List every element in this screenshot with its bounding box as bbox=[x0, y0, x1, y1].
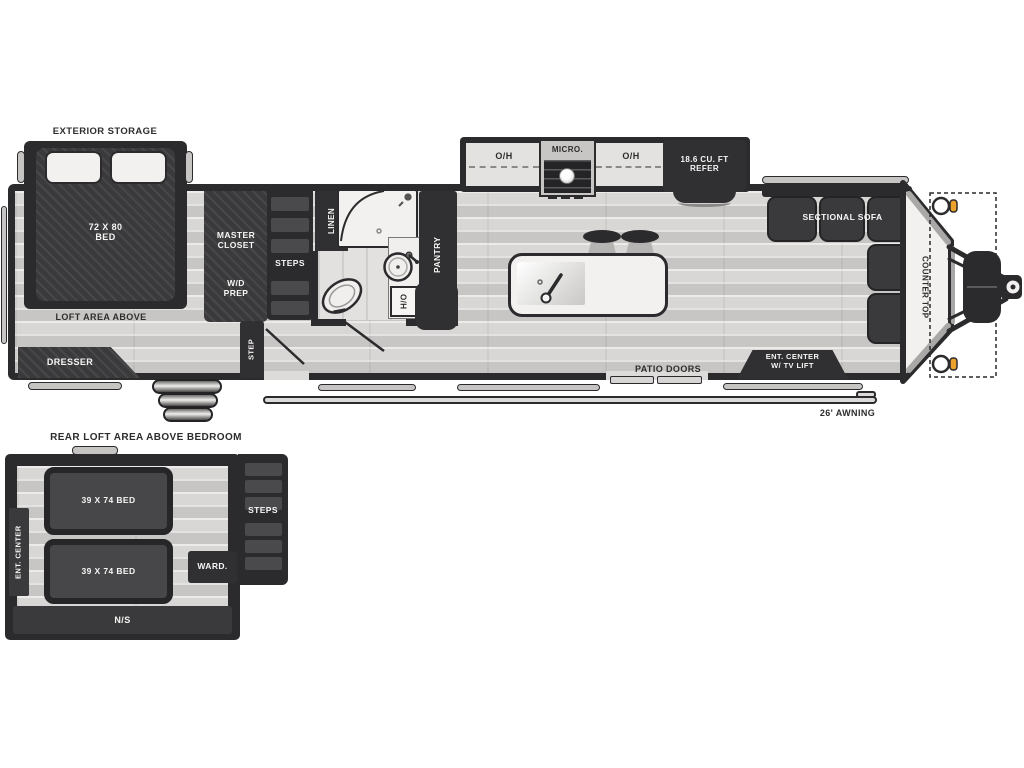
steps-label: STEPS bbox=[267, 259, 313, 269]
master-closet-label: MASTER CLOSET bbox=[204, 231, 268, 251]
loft-ent-center-label: ENT. CENTER bbox=[9, 508, 29, 596]
patio-door-panel bbox=[657, 376, 702, 384]
awning-label: 26' AWNING bbox=[795, 408, 900, 418]
sofa-cushion bbox=[867, 293, 917, 344]
overhead-cabinet-left-label: O/H bbox=[470, 151, 538, 161]
range-vent-dash bbox=[574, 195, 583, 199]
pillow bbox=[110, 151, 167, 184]
counter-dash-left bbox=[469, 166, 539, 168]
wd-prep-label: W/D PREP bbox=[204, 279, 268, 299]
water-heater-label: H/O bbox=[390, 286, 418, 317]
entry-step-label: STEP bbox=[240, 321, 264, 378]
slide-cap-right bbox=[185, 151, 193, 183]
propane-tanks bbox=[963, 251, 1001, 323]
rear-bumper-bar bbox=[1, 206, 7, 344]
floorplan-page: EXTERIOR STORAGE 72 X 80 BED O/H O/H MIC… bbox=[0, 0, 1024, 768]
refrigerator-arc bbox=[678, 199, 731, 207]
slide-rail-bar bbox=[723, 383, 863, 390]
step-tread bbox=[245, 540, 282, 553]
refrigerator-label: 18.6 CU. FT REFER bbox=[663, 155, 746, 173]
slide-rail-bar bbox=[28, 382, 122, 390]
loft-bed-2-label: 39 X 74 BED bbox=[44, 539, 173, 604]
hitch-assembly bbox=[930, 193, 1022, 377]
range-vent-dash bbox=[561, 195, 570, 199]
step-tread bbox=[271, 197, 309, 211]
patio-door-panel bbox=[610, 376, 654, 384]
marker-light-icon bbox=[950, 358, 957, 370]
slide-cap-left bbox=[17, 151, 25, 183]
entry-steps-exterior bbox=[152, 379, 222, 394]
loft-steps-label: STEPS bbox=[238, 506, 288, 516]
bath-wall-segment bbox=[313, 319, 346, 326]
sofa-slide-cap bbox=[762, 176, 909, 184]
sectional-sofa-label: SECTIONAL SOFA bbox=[785, 213, 900, 223]
bed-size-label: 72 X 80 BED bbox=[36, 222, 175, 243]
slide-rail-bar bbox=[318, 384, 416, 391]
stabilizer-jack-icon bbox=[933, 198, 949, 214]
loft-area-label: LOFT AREA ABOVE bbox=[30, 312, 172, 322]
entry-steps-exterior bbox=[158, 393, 218, 408]
range-vent-dash bbox=[548, 195, 557, 199]
microwave-label: MICRO. bbox=[539, 145, 596, 154]
step-tread bbox=[245, 523, 282, 536]
marker-light-icon bbox=[950, 200, 957, 212]
loft-bed-1-label: 39 X 74 BED bbox=[44, 467, 173, 535]
entry-steps-exterior bbox=[163, 407, 213, 422]
pantry-label: PANTRY bbox=[419, 200, 457, 310]
step-tread bbox=[271, 218, 309, 232]
bathroom-left-wall bbox=[311, 251, 318, 326]
bar-stool bbox=[583, 230, 621, 243]
step-tread bbox=[271, 301, 309, 315]
slide-rail-bar bbox=[457, 384, 600, 391]
counter-dash-right bbox=[596, 166, 661, 168]
step-tread bbox=[245, 463, 282, 476]
patio-doors-label: PATIO DOORS bbox=[618, 364, 718, 374]
entertainment-center-label: ENT. CENTER W/ TV LIFT bbox=[737, 353, 848, 370]
counter-top-label: COUNTER TOP bbox=[916, 250, 934, 324]
overhead-cabinet-right-label: O/H bbox=[598, 151, 664, 161]
master-closet bbox=[204, 191, 268, 322]
stabilizer-jack-icon bbox=[933, 356, 949, 372]
kitchen-sink bbox=[517, 262, 585, 305]
step-tread bbox=[245, 557, 282, 570]
burner-icon bbox=[559, 168, 575, 184]
loft-plan-title: REAR LOFT AREA ABOVE BEDROOM bbox=[20, 432, 272, 444]
loft-ns-label: N/S bbox=[13, 606, 232, 634]
step-tread bbox=[271, 239, 309, 253]
exterior-storage-label: EXTERIOR STORAGE bbox=[30, 127, 180, 138]
step-tread bbox=[245, 480, 282, 493]
hitch-coupler bbox=[1000, 275, 1022, 299]
loft-wardrobe-label: WARD. bbox=[188, 551, 237, 583]
bar-stool bbox=[621, 230, 659, 243]
dresser-label: DRESSER bbox=[18, 357, 122, 367]
awning-bar bbox=[263, 396, 877, 404]
step-tread bbox=[271, 281, 309, 295]
pillow bbox=[45, 151, 102, 184]
entry-door-opening bbox=[264, 371, 309, 380]
sofa-cushion bbox=[867, 244, 917, 291]
